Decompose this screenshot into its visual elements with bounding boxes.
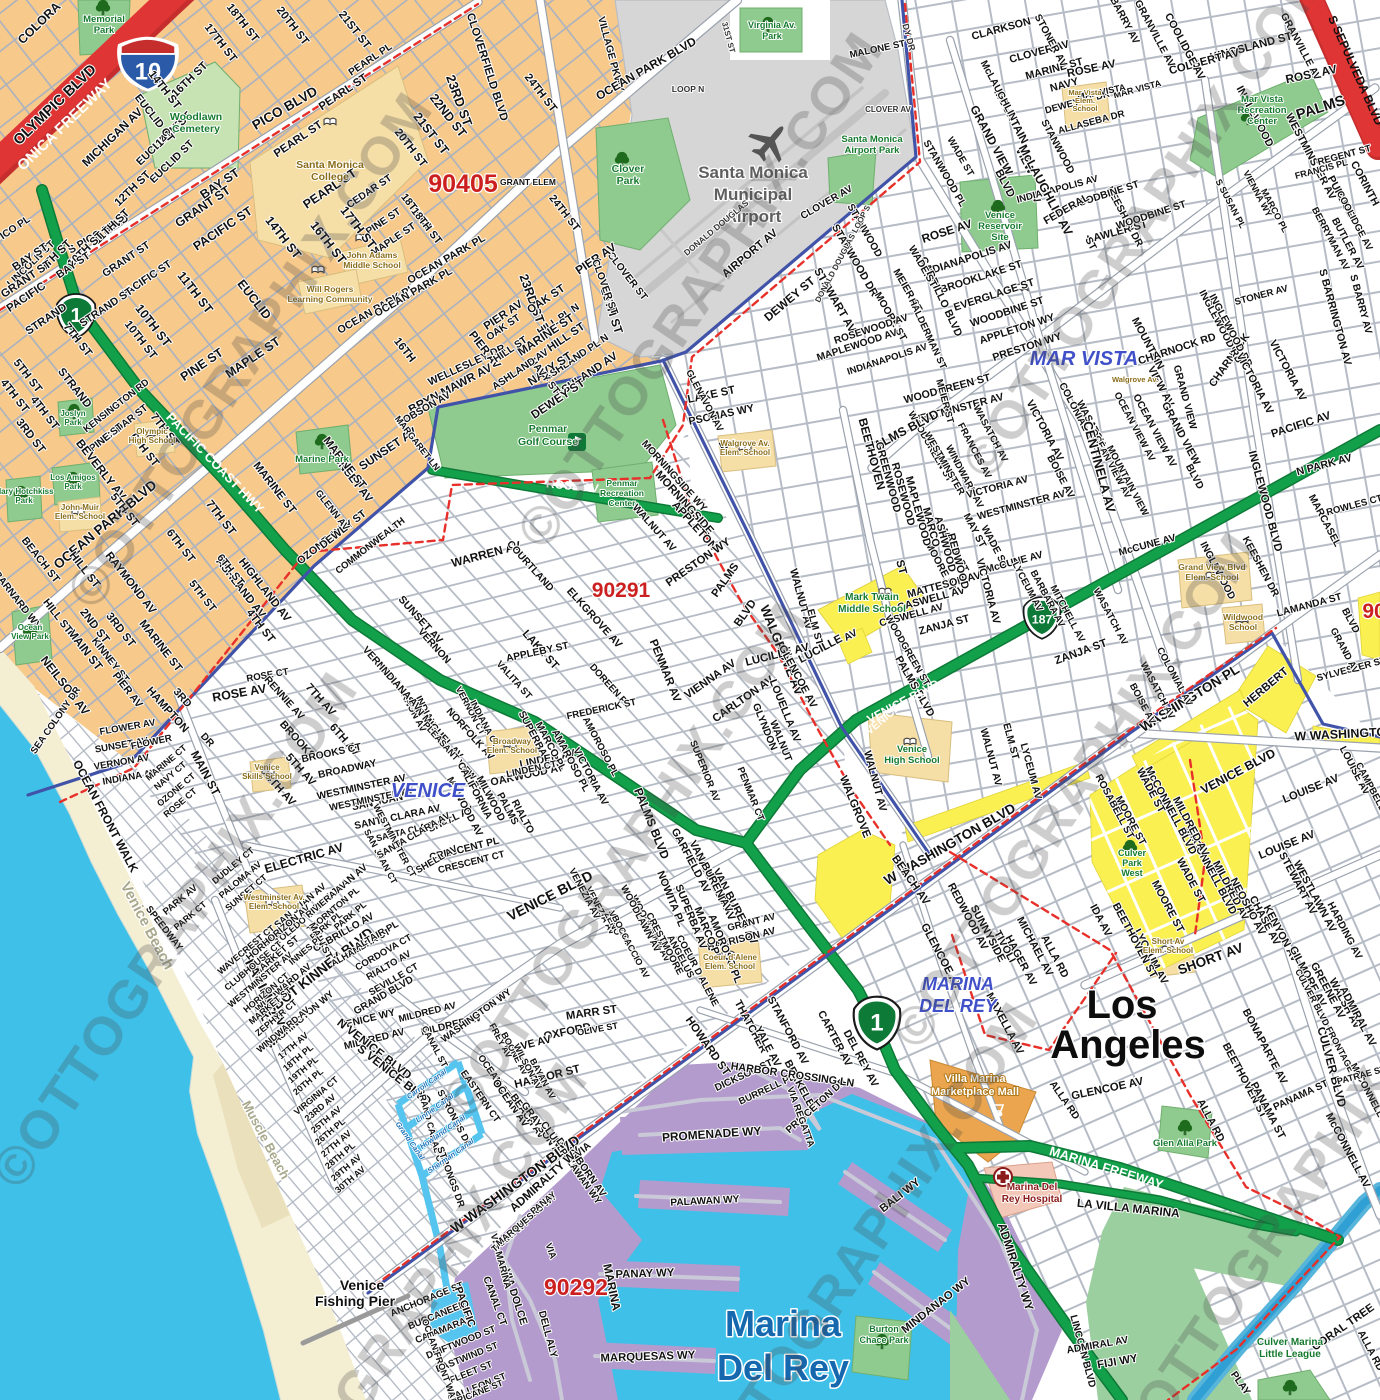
svg-text:Joslyn: Joslyn	[60, 409, 85, 418]
svg-text:90405: 90405	[428, 170, 498, 198]
svg-text:Mary Hotchkiss: Mary Hotchkiss	[0, 487, 54, 496]
svg-text:Culver: Culver	[1118, 848, 1147, 858]
svg-text:Elem. School: Elem. School	[1143, 946, 1193, 955]
svg-text:90291: 90291	[592, 579, 651, 602]
svg-text:Center: Center	[1247, 116, 1277, 127]
svg-text:Park: Park	[762, 31, 783, 41]
svg-text:Elem. School: Elem. School	[720, 448, 770, 457]
svg-text:Center: Center	[609, 498, 637, 508]
svg-text:Marina Del: Marina Del	[1007, 1182, 1058, 1193]
svg-text:John Muir: John Muir	[61, 503, 99, 512]
svg-text:High School: High School	[884, 755, 939, 766]
svg-text:Angeles: Angeles	[1050, 1023, 1206, 1067]
svg-text:Woodlawn: Woodlawn	[170, 111, 222, 123]
svg-text:Little League: Little League	[1259, 1349, 1321, 1360]
svg-text:Elem. School: Elem. School	[487, 746, 537, 755]
svg-text:Elem. School: Elem. School	[705, 962, 755, 971]
svg-text:CLOVER AV: CLOVER AV	[865, 105, 911, 114]
svg-text:Clover: Clover	[612, 163, 645, 175]
svg-text:West: West	[1121, 868, 1142, 878]
svg-text:Virginia Av.: Virginia Av.	[748, 20, 796, 30]
svg-text:Glen Alla Park: Glen Alla Park	[1153, 1138, 1218, 1149]
svg-text:Chace Park: Chace Park	[859, 1335, 909, 1345]
svg-text:Venice: Venice	[985, 210, 1015, 221]
svg-text:Park: Park	[64, 482, 82, 491]
svg-text:Park: Park	[94, 25, 115, 36]
svg-text:VENICE: VENICE	[391, 780, 466, 802]
svg-text:Venice: Venice	[340, 1277, 385, 1293]
svg-text:Walgrove Av.: Walgrove Av.	[720, 439, 769, 448]
svg-text:Burton: Burton	[869, 1324, 899, 1334]
svg-text:Cemetery: Cemetery	[172, 123, 220, 135]
svg-text:Park: Park	[617, 175, 640, 187]
svg-text:Site: Site	[991, 232, 1008, 243]
svg-text:PANAY WY: PANAY WY	[615, 1267, 675, 1281]
svg-text:187: 187	[1032, 613, 1053, 627]
svg-text:School: School	[1229, 622, 1257, 632]
svg-text:Walgrove Av.: Walgrove Av.	[1112, 375, 1158, 384]
svg-text:Westminster Av.: Westminster Av.	[243, 893, 304, 902]
svg-text:Middle School: Middle School	[343, 260, 401, 270]
svg-text:Coeur d'Alene: Coeur d'Alene	[703, 953, 757, 962]
svg-text:Broadway: Broadway	[493, 737, 532, 746]
svg-text:Culver Marina: Culver Marina	[1257, 1337, 1324, 1348]
svg-text:Short Av: Short Av	[1152, 937, 1185, 946]
svg-text:Elem. School: Elem. School	[55, 512, 105, 521]
svg-text:School: School	[1072, 104, 1097, 113]
svg-text:Elem. School: Elem. School	[249, 902, 299, 911]
svg-text:Rey Hospital: Rey Hospital	[1002, 1194, 1063, 1205]
svg-text:Park: Park	[15, 496, 33, 505]
svg-text:View Park: View Park	[11, 632, 49, 641]
svg-text:Marine Park: Marine Park	[295, 454, 350, 465]
svg-text:Los: Los	[1086, 983, 1157, 1027]
svg-text:90: 90	[1362, 600, 1380, 623]
svg-text:John Adams: John Adams	[347, 250, 398, 260]
svg-text:Santa Monica: Santa Monica	[841, 134, 903, 145]
svg-text:90292: 90292	[544, 1274, 608, 1300]
svg-text:Memorial: Memorial	[83, 14, 125, 25]
svg-text:Penmar: Penmar	[529, 423, 568, 435]
svg-text:Park: Park	[1122, 858, 1143, 868]
svg-text:Reservoir: Reservoir	[978, 221, 1022, 232]
svg-text:Los Amigos: Los Amigos	[50, 473, 96, 482]
svg-text:Venice: Venice	[897, 744, 927, 755]
svg-text:LOOP N: LOOP N	[672, 84, 704, 94]
svg-text:Recreation: Recreation	[600, 488, 644, 498]
svg-text:GRANT ELEM: GRANT ELEM	[500, 177, 556, 187]
svg-text:Airport Park: Airport Park	[845, 145, 901, 156]
svg-text:Penmar: Penmar	[606, 478, 638, 488]
svg-text:Mark Twain: Mark Twain	[845, 592, 899, 603]
svg-text:Ocean: Ocean	[18, 623, 43, 632]
svg-text:Park: Park	[64, 418, 82, 427]
svg-text:Middle School: Middle School	[838, 604, 906, 615]
